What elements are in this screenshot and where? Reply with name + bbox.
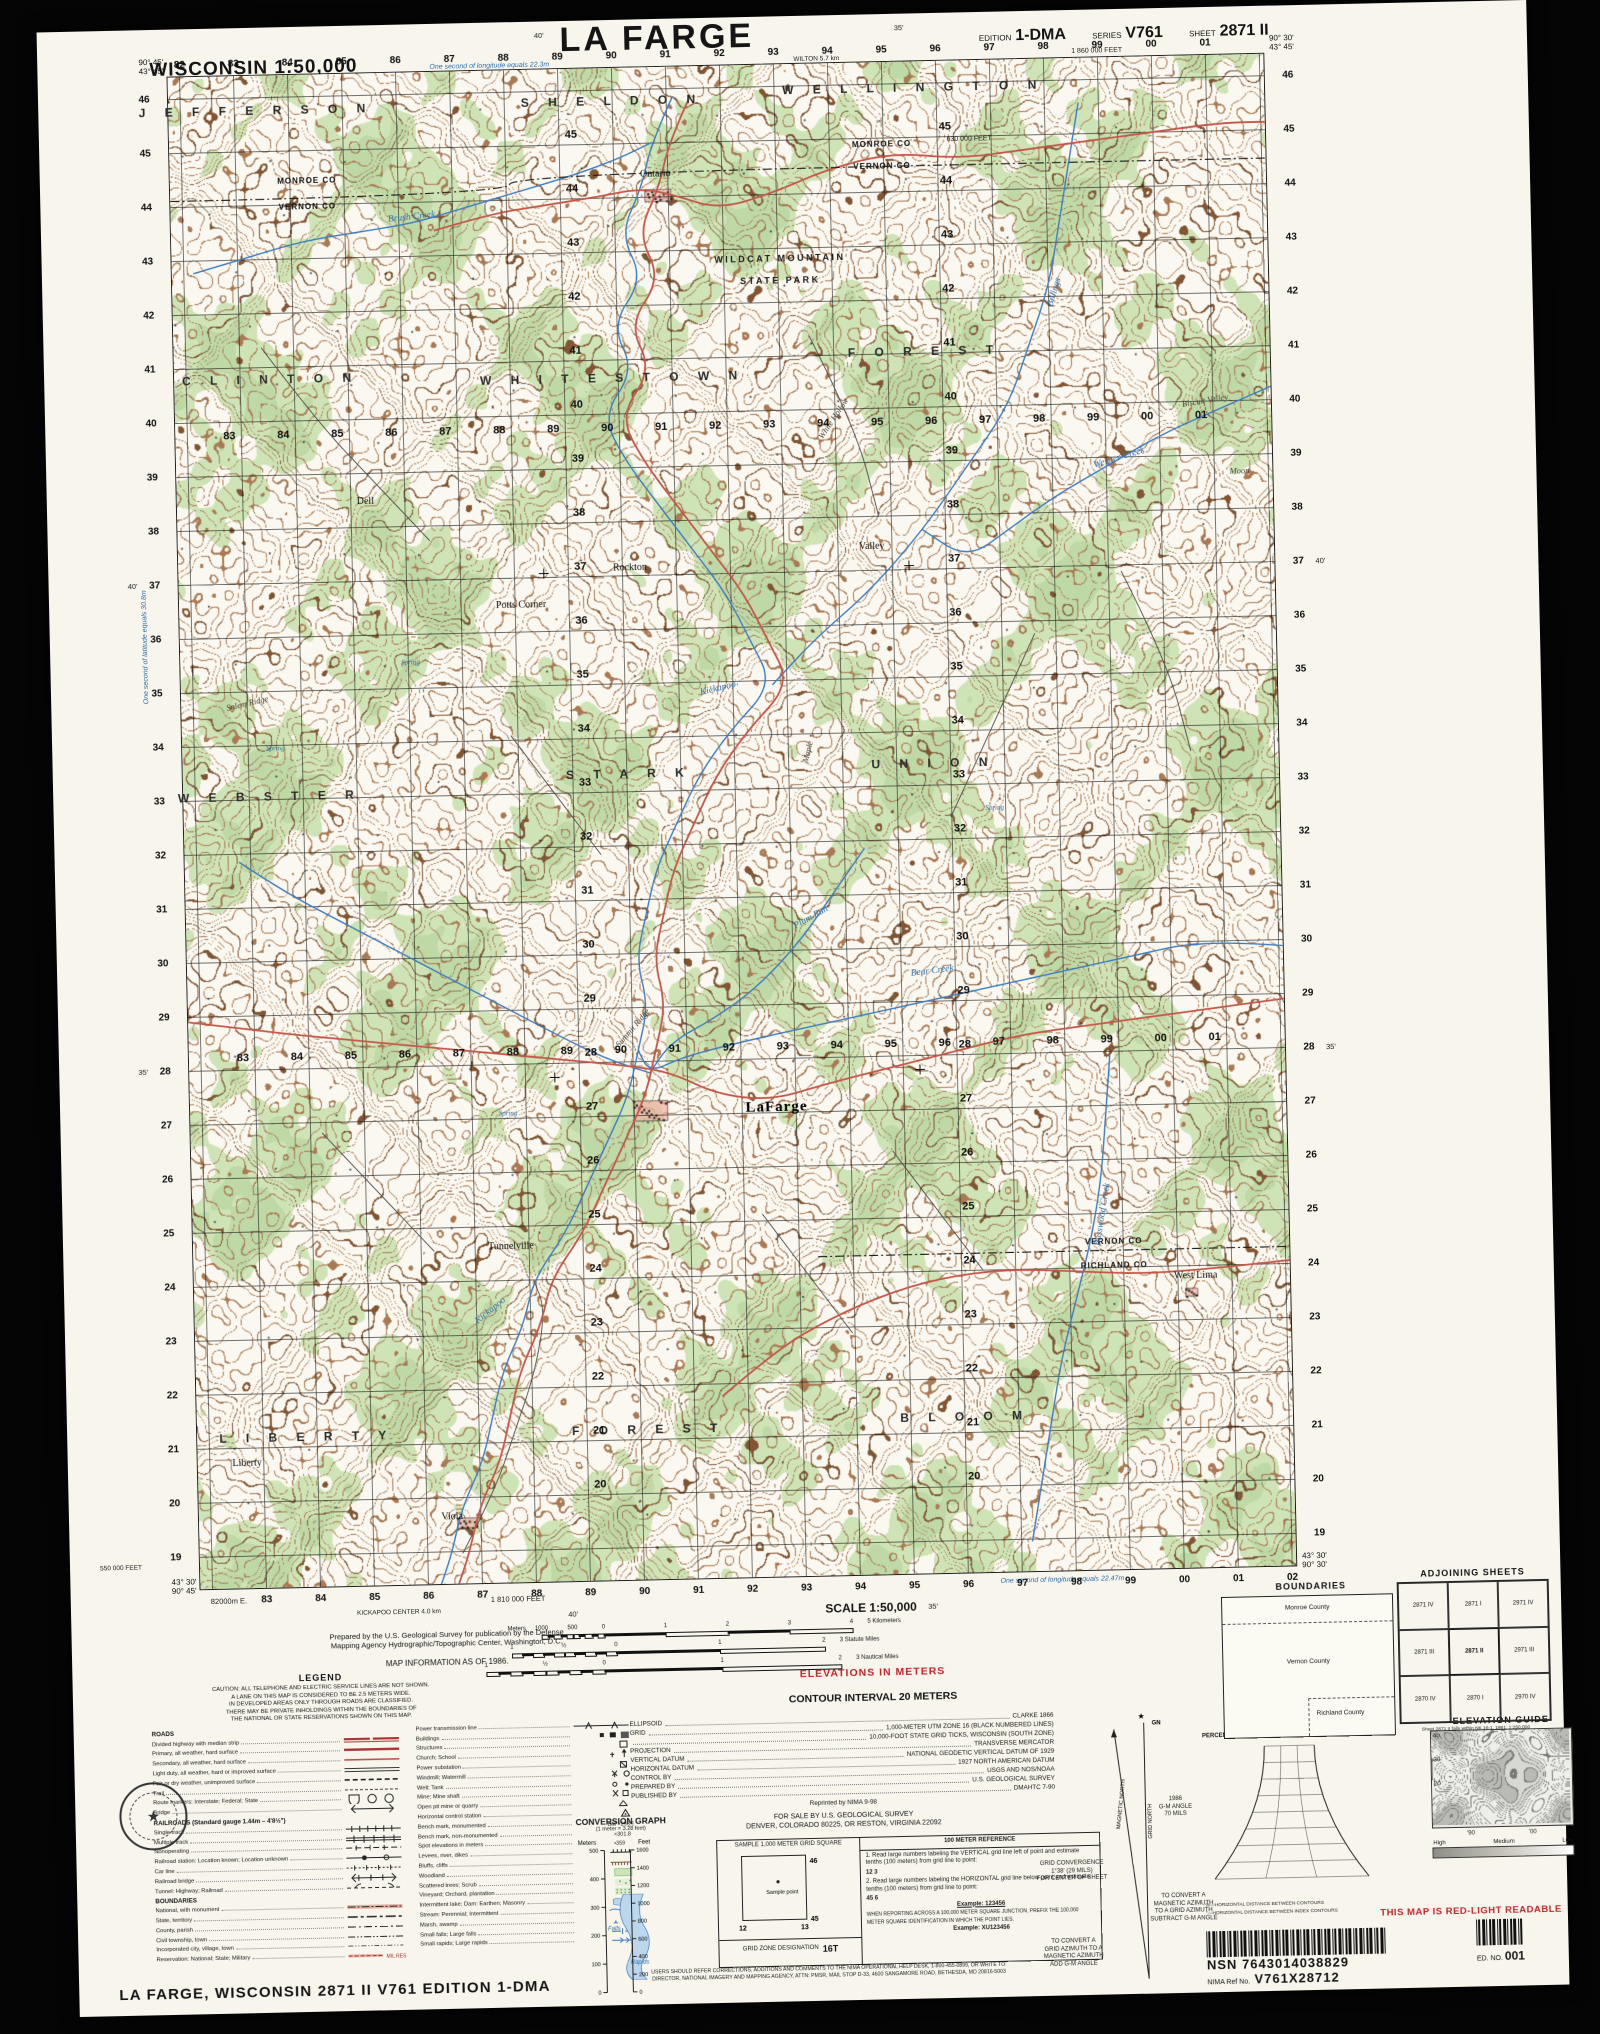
grid-number: 27 <box>1304 1095 1315 1106</box>
grid-number: 98 <box>1047 1034 1060 1046</box>
grid-number: 43 <box>1286 232 1297 243</box>
grid-number: 00 <box>1154 1032 1167 1044</box>
grid-number: 22 <box>1310 1365 1321 1376</box>
grid-number: 30 <box>956 930 969 942</box>
sheet-value: 2871 II <box>1219 22 1268 40</box>
svg-text:Meters: Meters <box>578 1841 596 1847</box>
note-latitude-left: One second of latitude equals 30.8m <box>141 590 150 704</box>
grid-number: 40' <box>128 582 138 591</box>
grid-number: 40 <box>944 391 957 403</box>
elevation-low: Low <box>1562 1837 1573 1843</box>
grid-number: 32 <box>954 822 967 834</box>
grid-number: 98 <box>1037 41 1048 52</box>
grid-number: 21 <box>1312 1419 1323 1430</box>
grid-number: 41 <box>144 364 155 375</box>
legend-cautions: CAUTION: ALL TELEPHONE AND ELECTRIC SERV… <box>151 1681 492 1726</box>
grid-number: 29 <box>158 1012 169 1023</box>
map-body: J E F F E R S O NS H E L D O NW E L L I … <box>168 54 1297 1590</box>
adjoining-cell: 2870 I <box>1450 1674 1501 1722</box>
adjoining-grid: 2871 IV2871 I2971 IV2871 III2871 II2971 … <box>1397 1579 1552 1724</box>
grid-number: 88 <box>531 1588 542 1599</box>
grid-number: 98 <box>1071 1577 1082 1588</box>
grid-number: 97 <box>979 414 992 426</box>
grid-number: 95 <box>871 416 884 428</box>
grid-number: 00 <box>1141 410 1154 422</box>
grid-number: 87 <box>453 1047 466 1059</box>
grid-number: 26 <box>162 1174 173 1185</box>
grid-number: 41 <box>569 345 582 357</box>
grid-number: 45 <box>1283 124 1294 135</box>
grid-number: 92 <box>723 1041 736 1053</box>
grid-number: 86 <box>385 427 398 439</box>
elevation-gradient-bar <box>1432 1844 1574 1858</box>
grid-number: 19 <box>1314 1527 1325 1538</box>
svg-text:600: 600 <box>638 1936 647 1942</box>
grid-number: 31 <box>581 885 594 897</box>
grid-number: 93 <box>767 47 778 58</box>
grid-number: 30 <box>157 958 168 969</box>
adjoining-cell: 2870 IV <box>1400 1675 1451 1723</box>
map-overlay <box>168 54 1297 1590</box>
elevation-tick: '00 <box>1529 1829 1537 1835</box>
grid-number: 84 <box>315 1593 326 1604</box>
grid-number: 26 <box>587 1154 600 1166</box>
grid-number: 40 <box>571 399 584 411</box>
grid-number: 95 <box>875 44 886 55</box>
grid-number: 46 <box>138 95 149 106</box>
grid-number: 31 <box>156 904 167 915</box>
elevation-medium: Medium <box>1493 1839 1514 1845</box>
corner-top-right: 90° 30'43° 45' <box>1269 33 1294 52</box>
legend-left-column: ROADSDivided highway with median stripPr… <box>152 1725 407 1966</box>
grid-number: 30 <box>582 939 595 951</box>
svg-text:Sample point: Sample point <box>766 1889 799 1896</box>
svg-text:Feet: Feet <box>638 1840 650 1846</box>
grid-number: 83 <box>261 1594 272 1605</box>
destination-bottom: KICKAPOO CENTER 4.0 km <box>357 1608 441 1617</box>
elevation-thumbnail: 403020 '90'00 <box>1430 1727 1574 1828</box>
svg-text:13: 13 <box>801 1924 809 1931</box>
svg-text:400: 400 <box>639 1954 648 1960</box>
corner-bottom-left: 43° 30'90° 45' <box>126 1577 196 1597</box>
grid-number: 30 <box>1301 933 1312 944</box>
feet-bottom-left: 550 000 FEET <box>100 1565 142 1573</box>
footer-title: LA FARGE, WISCONSIN 2871 II V761 EDITION… <box>119 1978 551 2004</box>
svg-text:GN: GN <box>1152 1720 1161 1726</box>
grid-number: 91 <box>655 421 668 433</box>
grid-number: 28 <box>1303 1041 1314 1052</box>
svg-text:1600: 1600 <box>636 1848 648 1854</box>
grid-number: 93 <box>801 1582 812 1593</box>
grid-number: 89 <box>585 1587 596 1598</box>
grid-number: 35' <box>138 1068 148 1077</box>
grid-number: 39 <box>572 453 585 465</box>
grid-number: 85 <box>336 56 347 67</box>
grid-number: 27 <box>960 1092 973 1104</box>
grid-number: 90 <box>601 422 614 434</box>
grid-number: 28 <box>959 1038 972 1050</box>
nsn-barcode <box>1206 1927 1388 1957</box>
legend-symbol-bridge <box>343 1803 403 1814</box>
grid-number: 42 <box>1287 286 1298 297</box>
grid-number: 29 <box>1302 987 1313 998</box>
grid-number: 94 <box>831 1039 844 1051</box>
grid-number: 97 <box>983 42 994 53</box>
grid-number: 27 <box>586 1100 599 1112</box>
grid-number: 29 <box>957 984 970 996</box>
grid-number: 92 <box>713 48 724 59</box>
grid-number: 20 <box>594 1478 607 1490</box>
grid-number: 82 <box>174 60 185 71</box>
grid-number: 35 <box>950 660 963 672</box>
grid-number: 45 <box>140 149 151 160</box>
svg-text:100: 100 <box>592 1962 601 1968</box>
elevation-tick: '90 <box>1467 1831 1475 1837</box>
grid-number: 43 <box>142 257 153 268</box>
grid-number: 40 <box>1289 394 1300 405</box>
svg-text:1000: 1000 <box>637 1901 649 1907</box>
grid-number: 37 <box>1293 555 1304 566</box>
grid-number: 34 <box>1296 717 1307 728</box>
grid-number: 36 <box>949 606 962 618</box>
grid-number: 99 <box>1100 1033 1113 1045</box>
svg-text:MAGNETIC NORTH: MAGNETIC NORTH <box>1116 1779 1127 1829</box>
grid-number: 96 <box>929 43 940 54</box>
svg-text:0: 0 <box>598 1991 601 1997</box>
grid-number: 90 <box>639 1586 650 1597</box>
legend-symbol-tunnel <box>345 1882 405 1893</box>
grid-number: 96 <box>963 1579 974 1590</box>
datum-block: ELLIPSOIDCLARKE 1866GRID1,000-METER UTM … <box>629 1711 1055 1811</box>
grid-number: 22 <box>167 1390 178 1401</box>
grid-number: 95 <box>885 1038 898 1050</box>
grid-number: 86 <box>390 55 401 66</box>
grid-number: 93 <box>763 418 776 430</box>
grid-number: 45 <box>565 129 578 141</box>
adjoining-cell: 2970 IV <box>1500 1673 1551 1721</box>
grid-number: 94 <box>855 1581 866 1592</box>
boundary-richland: Richland County <box>1286 1708 1394 1717</box>
grid-number: 40' <box>1315 556 1325 565</box>
elevation-tick: 40 <box>1433 1733 1440 1739</box>
grid-number: 87 <box>477 1590 488 1601</box>
easting-label-bl: 82000m E. <box>211 1596 247 1606</box>
grid-number: 33 <box>154 796 165 807</box>
slope-guide: SLOPE GUIDE PERCENTAGE DEGREE %—HORIZONT… <box>1202 1718 1381 1918</box>
grid-number: 25 <box>588 1208 601 1220</box>
adjoining-cell: 2871 III <box>1399 1629 1450 1677</box>
grid-number: 92 <box>709 420 722 432</box>
grid-number: 21 <box>168 1444 179 1455</box>
grid-number: 44 <box>1284 178 1295 189</box>
boundaries-panel: BOUNDARIES Monroe County Vernon County R… <box>1221 1579 1404 1739</box>
grid-number: 24 <box>1308 1257 1319 1268</box>
boundaries-title: BOUNDARIES <box>1221 1579 1401 1593</box>
grid-number: 85 <box>331 428 344 440</box>
grid-number: 00 <box>1145 39 1156 50</box>
grid-number: 43 <box>941 229 954 241</box>
grid-number: 96 <box>925 415 938 427</box>
grid-number: 44 <box>566 183 579 195</box>
svg-text:500: 500 <box>589 1849 598 1855</box>
boundary-vernon: Vernon County <box>1223 1656 1393 1667</box>
grid-number: 01 <box>1208 1031 1221 1043</box>
prepared-credit: Prepared by the U.S. Geological Survey f… <box>222 1625 673 1672</box>
elevation-tick: 30 <box>1433 1757 1440 1763</box>
grid-number: 38 <box>947 498 960 510</box>
grid-number: 40 <box>145 418 156 429</box>
adjoining-sheets-panel: ADJOINING SHEETS 2871 IV2871 I2971 IV287… <box>1392 1566 1556 1735</box>
grid-number: 93 <box>777 1040 790 1052</box>
grid-number: 84 <box>277 429 290 441</box>
corner-bottom-right: 43° 30'90° 30' <box>1302 1551 1327 1570</box>
grid-number: 83 <box>223 430 236 442</box>
elevation-guide: ELEVATION GUIDE 403020 '90'00 High Mediu… <box>1426 1713 1579 1858</box>
grid-number: 35' <box>1326 1042 1336 1051</box>
grid-number: 88 <box>507 1046 520 1058</box>
grid-number: 21 <box>967 1416 980 1428</box>
boundary-monroe: Monroe County <box>1222 1602 1392 1613</box>
grid-number: 39 <box>147 472 158 483</box>
series-value: V761 <box>1125 24 1163 42</box>
grid-number: 25 <box>163 1228 174 1239</box>
sample-square-diagram: Sample point46451213 <box>717 1847 861 1934</box>
svg-text:200: 200 <box>591 1934 600 1940</box>
grid-number: 25 <box>1307 1203 1318 1214</box>
grid-number: 89 <box>547 423 560 435</box>
grid-number: 85 <box>345 1050 358 1062</box>
svg-text:400: 400 <box>590 1877 599 1883</box>
grid-number: 38 <box>148 526 159 537</box>
svg-text:46: 46 <box>810 1857 818 1864</box>
grid-number: 41 <box>943 337 956 349</box>
grid-number: 21 <box>593 1424 606 1436</box>
grid-number: 25 <box>962 1200 975 1212</box>
gm-angle: 1986G-M ANGLE70 MILS <box>1145 1795 1205 1819</box>
adjoining-cell: 2971 IV <box>1498 1580 1549 1628</box>
grid-number: 26 <box>961 1146 974 1158</box>
grid-number: 36 <box>1294 609 1305 620</box>
grid-number: 38 <box>1291 501 1302 512</box>
grid-number: 22 <box>966 1362 979 1374</box>
grid-number: 94 <box>817 417 830 429</box>
slope-funnel <box>1202 1736 1380 1898</box>
grid-number: 22 <box>592 1370 605 1382</box>
grid-number: 84 <box>282 57 293 68</box>
grid-number: 34 <box>152 742 163 753</box>
grid-number: 20 <box>1313 1473 1324 1484</box>
corner-top-left: 90° 45'43° 45' <box>97 58 163 77</box>
grid-number: 99 <box>1091 40 1102 51</box>
svg-text:800: 800 <box>638 1919 647 1925</box>
grid-number: 98 <box>1033 413 1046 425</box>
grid-number: 45 <box>939 121 952 133</box>
elevation-tick: 20 <box>1434 1781 1441 1787</box>
grid-number: 96 <box>939 1037 952 1049</box>
grid-number: 33 <box>953 768 966 780</box>
grid-number: 42 <box>942 283 955 295</box>
grid-number: 44 <box>940 175 953 187</box>
grid-number: 23 <box>964 1308 977 1320</box>
grid-number: 94 <box>821 46 832 57</box>
grid-number: 34 <box>952 714 965 726</box>
svg-text:★: ★ <box>1137 1712 1144 1721</box>
svg-text:0: 0 <box>639 1990 642 1996</box>
grid-number: 36 <box>575 615 588 627</box>
adjoining-cell: 2871 I <box>1448 1581 1499 1629</box>
grid-number: 01 <box>1195 409 1208 421</box>
grid-number: 37 <box>149 580 160 591</box>
legend-symbol-bRes: MIL RES <box>346 1950 406 1961</box>
edition-number: ED. NO. 001 <box>1477 1948 1525 1963</box>
grid-number: 35 <box>151 688 162 699</box>
grid-number: 85 <box>369 1592 380 1603</box>
scale-title: SCALE 1:50,000 <box>731 1598 1011 1618</box>
grid-number: 42 <box>143 310 154 321</box>
grid-number: 24 <box>963 1254 976 1266</box>
gzd-value: 16T <box>823 1943 839 1953</box>
grid-number: 37 <box>948 552 961 564</box>
grid-number: 35 <box>576 669 589 681</box>
adjoining-title: ADJOINING SHEETS <box>1392 1566 1552 1579</box>
grid-number: 29 <box>583 993 596 1005</box>
grid-number: 42 <box>568 291 581 303</box>
grid-number: 38 <box>573 507 586 519</box>
grid-number: 36 <box>150 634 161 645</box>
svg-text:MIL RES: MIL RES <box>387 1954 407 1960</box>
grid-number: 20 <box>169 1498 180 1509</box>
grid-number: 86 <box>399 1049 412 1061</box>
grid-number: 83 <box>237 1052 250 1064</box>
grid-number: 89 <box>561 1045 574 1057</box>
grid-number: 44 <box>141 203 152 214</box>
grid-number: 88 <box>493 424 506 436</box>
map-sheet: WISCONSIN 1:50,000 LA FARGE EDITION1-DMA… <box>37 0 1570 2017</box>
grid-number: 87 <box>439 426 452 438</box>
elevation-high: High <box>1433 1840 1445 1846</box>
edition-barcode <box>1476 1918 1525 1945</box>
declination-diagram: ★GNMAGNETIC NORTHGRID NORTH 1986G-M ANGL… <box>1025 1707 1221 1991</box>
grid-number: 37 <box>574 561 587 573</box>
scan-backdrop: WISCONSIN 1:50,000 LA FARGE EDITION1-DMA… <box>0 0 1600 2034</box>
grid-number: 90 <box>615 1044 628 1056</box>
adjoining-cell: 2871 II <box>1449 1628 1500 1676</box>
grid-convergence: GRID CONVERGENCE1°38' (29 MILS)FOR CENTE… <box>1029 1859 1115 1883</box>
grid-number: 20 <box>968 1470 981 1482</box>
grid-number: 99 <box>1125 1575 1136 1586</box>
svg-text:1400: 1400 <box>637 1865 649 1871</box>
elevations-in-meters: ELEVATIONS IN METERS <box>712 1663 1032 1682</box>
grid-number: 39 <box>1290 447 1301 458</box>
grid-number: 23 <box>591 1316 604 1328</box>
adjoining-cell: 2871 IV <box>1398 1582 1449 1630</box>
grid-number: 35 <box>1295 663 1306 674</box>
grid-number: 31 <box>1300 879 1311 890</box>
grid-number: 19 <box>170 1552 181 1563</box>
grid-number: 26 <box>1306 1149 1317 1160</box>
grid-number: 88 <box>498 53 509 64</box>
grid-number: 41 <box>1288 340 1299 351</box>
grid-number: 24 <box>164 1282 175 1293</box>
grid-number: 43 <box>567 237 580 249</box>
grid-number: 00 <box>1179 1574 1190 1585</box>
grid-number: 33 <box>579 777 592 789</box>
grid-number: 97 <box>1017 1578 1028 1589</box>
grid-number: 99 <box>1087 411 1100 423</box>
svg-text:1200: 1200 <box>637 1883 649 1889</box>
grid-number: 24 <box>589 1262 602 1274</box>
sample-grid-square: SAMPLE 1,000 METER GRID SQUARE Sample po… <box>717 1838 863 1967</box>
grid-number: 46 <box>1282 70 1293 81</box>
grid-number: 39 <box>946 444 959 456</box>
svg-text:12: 12 <box>739 1925 747 1932</box>
grid-number: 84 <box>291 1051 304 1063</box>
grid-number: 83 <box>228 59 239 70</box>
grid-number: 32 <box>1299 825 1310 836</box>
grid-number: 01 <box>1199 37 1210 48</box>
grid-number: 90 <box>605 50 616 61</box>
grid-number: 33 <box>1297 771 1308 782</box>
grid-number: 28 <box>585 1047 598 1059</box>
grid-number: 86 <box>423 1591 434 1602</box>
contour-interval: CONTOUR INTERVAL 20 METERS <box>703 1688 1043 1707</box>
grid-number: 23 <box>165 1336 176 1347</box>
grid-number: 87 <box>444 54 455 65</box>
nima-ref-number: NIMA Ref No. V761X28712 <box>1207 1969 1340 1990</box>
grid-number: 31 <box>955 876 968 888</box>
grid-number: 89 <box>552 52 563 63</box>
seal-emblem: ★ <box>129 1792 178 1841</box>
grid-number: 28 <box>160 1066 171 1077</box>
grid-number: 97 <box>993 1036 1006 1048</box>
grid-number: 32 <box>580 831 593 843</box>
grid-number: 95 <box>909 1580 920 1591</box>
grid-number: 27 <box>161 1120 172 1131</box>
grid-number: 91 <box>669 1043 682 1055</box>
grid-number: 23 <box>1309 1311 1320 1322</box>
grid-number: 92 <box>747 1584 758 1595</box>
grid-number: 34 <box>578 723 591 735</box>
svg-text:45: 45 <box>811 1915 819 1922</box>
gzd-label: GRID ZONE DESIGNATION <box>743 1945 819 1954</box>
grid-number: 91 <box>693 1585 704 1596</box>
grid-number: 91 <box>659 49 670 60</box>
svg-text:300: 300 <box>590 1905 599 1911</box>
grid-number: 32 <box>155 850 166 861</box>
adjoining-cell: 2971 III <box>1499 1627 1550 1675</box>
grid-number: 40' <box>568 1610 578 1619</box>
